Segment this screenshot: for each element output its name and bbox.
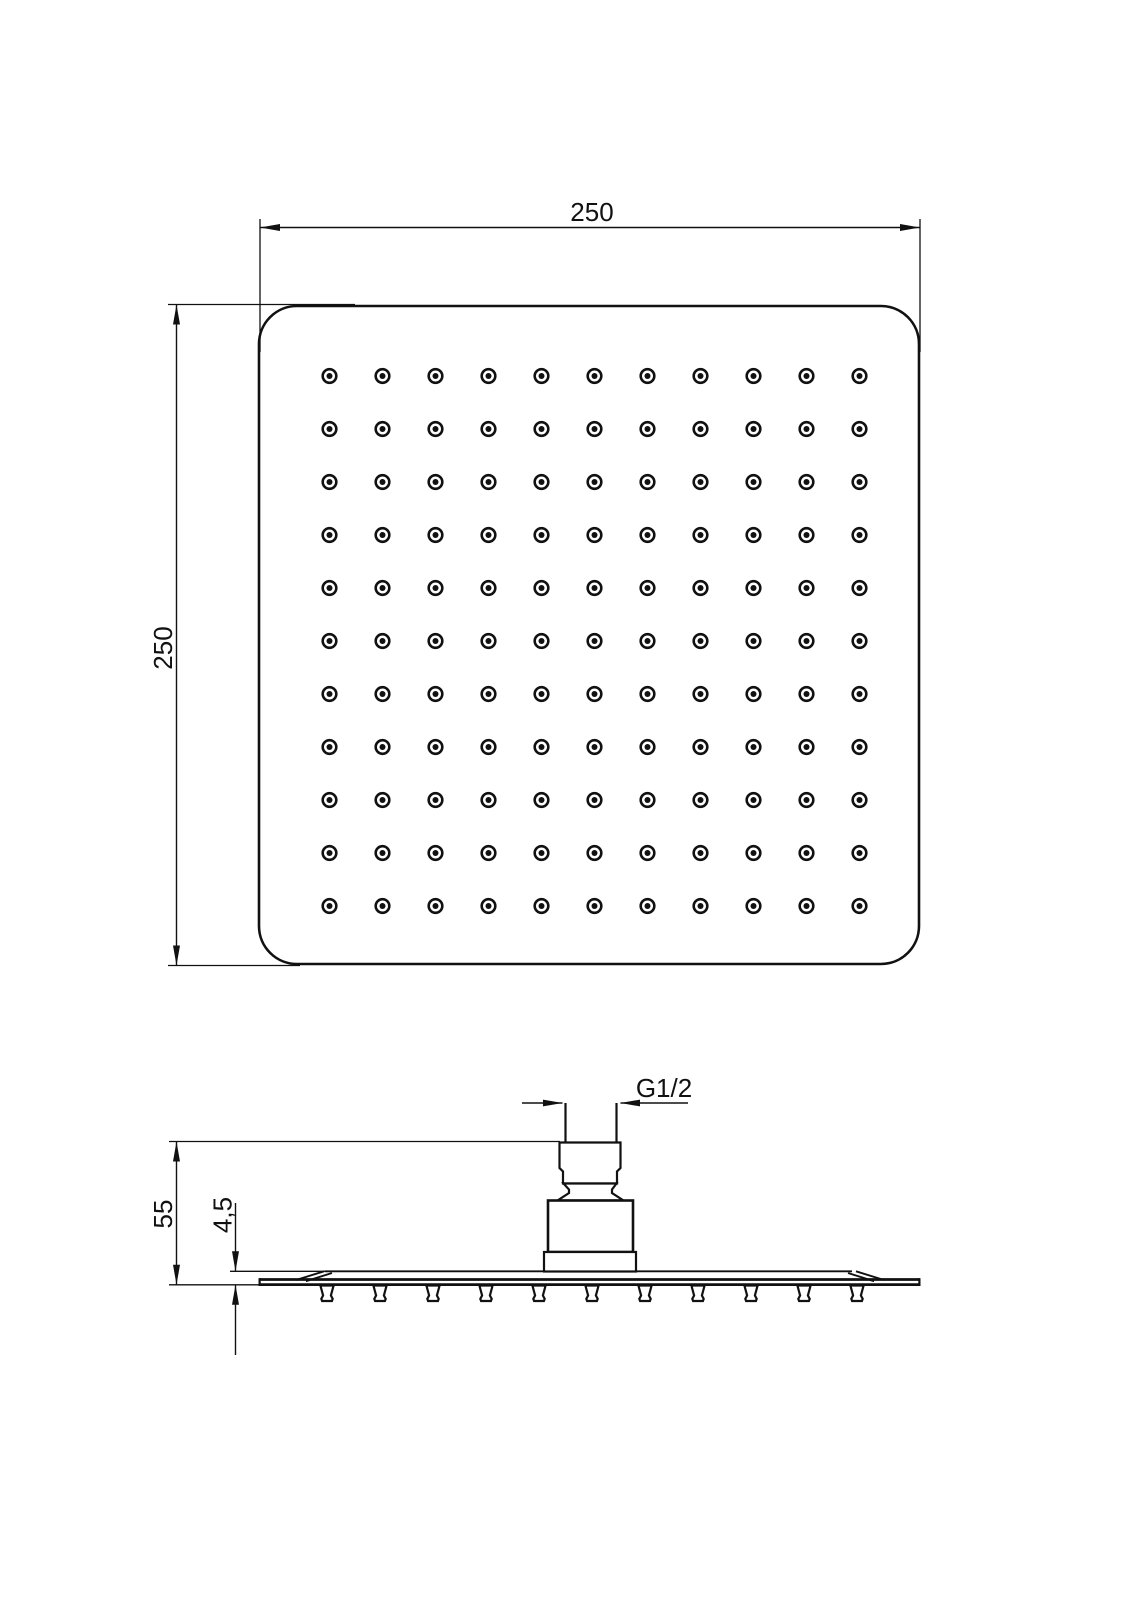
spray-hole-center	[327, 373, 333, 379]
spray-hole-center	[380, 744, 386, 750]
spray-hole-center	[433, 638, 439, 644]
spray-hole-center	[698, 426, 704, 432]
spray-hole-center	[804, 638, 810, 644]
spray-hole-center	[539, 426, 545, 432]
spray-hole-center	[698, 744, 704, 750]
dim-label-width: 250	[570, 197, 613, 227]
spray-hole-center	[486, 426, 492, 432]
spray-hole-center	[698, 691, 704, 697]
spray-hole-center	[433, 744, 439, 750]
spray-hole-center	[857, 585, 863, 591]
spray-hole-center	[486, 903, 492, 909]
spray-hole-center	[433, 479, 439, 485]
spray-hole-center	[751, 797, 757, 803]
spray-hole-center	[857, 479, 863, 485]
spray-nozzle	[638, 1286, 651, 1302]
spray-hole-center	[327, 479, 333, 485]
spray-hole-center	[698, 585, 704, 591]
spray-hole-center	[804, 850, 810, 856]
spray-hole-center	[327, 903, 333, 909]
spray-hole-center	[380, 373, 386, 379]
spray-hole-center	[751, 585, 757, 591]
spray-hole-center	[804, 585, 810, 591]
arrowhead-left	[260, 224, 280, 231]
spray-hole-center	[486, 373, 492, 379]
spray-hole-center	[698, 903, 704, 909]
spray-hole-center	[592, 903, 598, 909]
spray-nozzle	[532, 1286, 545, 1302]
nozzle-row	[320, 1286, 863, 1302]
spray-hole-center	[645, 744, 651, 750]
spray-hole-center	[592, 850, 598, 856]
spray-nozzle	[691, 1286, 704, 1302]
spray-hole-center	[857, 373, 863, 379]
spray-hole-center	[645, 850, 651, 856]
spray-hole-center	[751, 479, 757, 485]
spray-hole-center	[433, 585, 439, 591]
spray-hole-center	[592, 638, 598, 644]
spray-nozzle	[426, 1286, 439, 1302]
arrowhead-up	[232, 1285, 239, 1305]
spray-hole-center	[751, 638, 757, 644]
arrowhead-down	[173, 946, 180, 966]
spray-hole-center	[380, 903, 386, 909]
spray-hole-center	[380, 585, 386, 591]
spray-hole-center	[539, 850, 545, 856]
spray-hole-center	[433, 691, 439, 697]
dim-label-55: 55	[148, 1200, 178, 1229]
spray-hole-center	[380, 426, 386, 432]
spray-hole-center	[804, 691, 810, 697]
spray-nozzle	[585, 1286, 598, 1302]
arrowhead-right	[900, 224, 920, 231]
spray-hole-center	[327, 744, 333, 750]
spray-hole-center	[539, 797, 545, 803]
spray-hole-center	[433, 797, 439, 803]
spray-hole-center	[645, 426, 651, 432]
top-view	[259, 306, 919, 964]
spray-hole-center	[857, 691, 863, 697]
spray-nozzle	[850, 1286, 863, 1302]
spray-hole-center	[486, 479, 492, 485]
spray-hole-center	[804, 903, 810, 909]
spray-hole-center	[592, 797, 598, 803]
thread-adapter	[560, 1143, 621, 1184]
spray-hole-center	[539, 585, 545, 591]
spray-hole-center	[433, 850, 439, 856]
spray-hole-center	[539, 479, 545, 485]
spray-hole-center	[327, 585, 333, 591]
spray-hole-center	[698, 638, 704, 644]
spray-hole-center	[486, 638, 492, 644]
spray-nozzle	[797, 1286, 810, 1302]
shower-plate-face	[259, 306, 919, 964]
spray-hole-center	[645, 691, 651, 697]
spray-hole-center	[486, 585, 492, 591]
spray-hole-center	[486, 744, 492, 750]
spray-hole-center	[857, 850, 863, 856]
spray-hole-center	[804, 373, 810, 379]
spray-nozzle	[320, 1286, 333, 1302]
spray-nozzle	[479, 1286, 492, 1302]
spray-hole-center	[645, 532, 651, 538]
spray-hole-center	[857, 638, 863, 644]
spray-hole-center	[804, 744, 810, 750]
arrowhead-right	[543, 1100, 563, 1107]
spray-hole-center	[539, 744, 545, 750]
dim-label-45: 4,5	[208, 1197, 238, 1233]
spray-hole-center	[804, 426, 810, 432]
spray-hole-center	[592, 744, 598, 750]
spray-hole-center	[486, 850, 492, 856]
spray-hole-center	[804, 797, 810, 803]
spray-hole-center	[751, 850, 757, 856]
spray-hole-center	[804, 532, 810, 538]
spray-hole-center	[751, 744, 757, 750]
spray-hole-center	[645, 479, 651, 485]
spray-hole-center	[645, 903, 651, 909]
spray-hole-center	[327, 638, 333, 644]
dim-plate-thickness: 4,5	[208, 1197, 336, 1355]
side-view	[259, 1103, 920, 1301]
spray-hole-center	[380, 691, 386, 697]
spray-hole-center	[433, 426, 439, 432]
spray-hole-center	[751, 532, 757, 538]
dim-thread: G1/2	[522, 1073, 692, 1106]
spray-hole-center	[592, 691, 598, 697]
spray-hole-center	[751, 373, 757, 379]
spray-hole-center	[645, 585, 651, 591]
connector-collar	[558, 1184, 624, 1201]
spray-hole-center	[539, 373, 545, 379]
spray-hole-center	[592, 585, 598, 591]
spray-hole-center	[380, 850, 386, 856]
spray-hole-center	[804, 479, 810, 485]
spray-hole-center	[857, 903, 863, 909]
spray-hole-center	[380, 479, 386, 485]
arrowhead-down	[232, 1251, 239, 1271]
spray-hole-center	[698, 797, 704, 803]
spray-hole-center	[592, 373, 598, 379]
spray-hole-center	[433, 373, 439, 379]
dim-label-thread: G1/2	[636, 1073, 692, 1103]
spray-hole-center	[327, 691, 333, 697]
spray-hole-center	[698, 373, 704, 379]
connector-base	[544, 1252, 636, 1272]
spray-hole-center	[857, 744, 863, 750]
spray-hole-center	[751, 903, 757, 909]
spray-nozzle	[744, 1286, 757, 1302]
arrowhead-up	[173, 1142, 180, 1162]
spray-hole-center	[380, 797, 386, 803]
spray-hole-center	[539, 691, 545, 697]
arrowhead-down	[173, 1265, 180, 1285]
spray-hole-center	[857, 797, 863, 803]
spray-hole-center	[592, 532, 598, 538]
shower-head-technical-drawing: 250 250	[0, 0, 1141, 1600]
spray-hole-center	[327, 850, 333, 856]
spray-hole-center	[857, 426, 863, 432]
spray-hole-center	[380, 638, 386, 644]
spray-hole-center	[327, 532, 333, 538]
spray-hole-center	[380, 532, 386, 538]
spray-hole-center	[486, 691, 492, 697]
spray-hole-center	[486, 532, 492, 538]
spray-hole-center	[539, 638, 545, 644]
spray-hole-center	[645, 373, 651, 379]
spray-hole-center	[539, 532, 545, 538]
spray-hole-center	[698, 479, 704, 485]
spray-hole-center	[645, 638, 651, 644]
connector-body	[548, 1201, 633, 1253]
spray-nozzle	[373, 1286, 386, 1302]
spray-hole-center	[327, 426, 333, 432]
spray-hole-center	[592, 479, 598, 485]
arrowhead-up	[173, 305, 180, 325]
dim-label-height: 250	[148, 626, 178, 669]
spray-hole-center	[327, 797, 333, 803]
spray-hole-center	[592, 426, 598, 432]
spray-hole-center	[539, 903, 545, 909]
spray-hole-center	[857, 532, 863, 538]
spray-hole-center	[751, 691, 757, 697]
spray-hole-center	[698, 850, 704, 856]
drawing-svg: 250 250	[0, 0, 1141, 1600]
spray-hole-center	[698, 532, 704, 538]
spray-hole-center	[486, 797, 492, 803]
spray-hole-center	[751, 426, 757, 432]
spray-hole-center	[433, 532, 439, 538]
spray-hole-center	[645, 797, 651, 803]
spray-hole-center	[433, 903, 439, 909]
